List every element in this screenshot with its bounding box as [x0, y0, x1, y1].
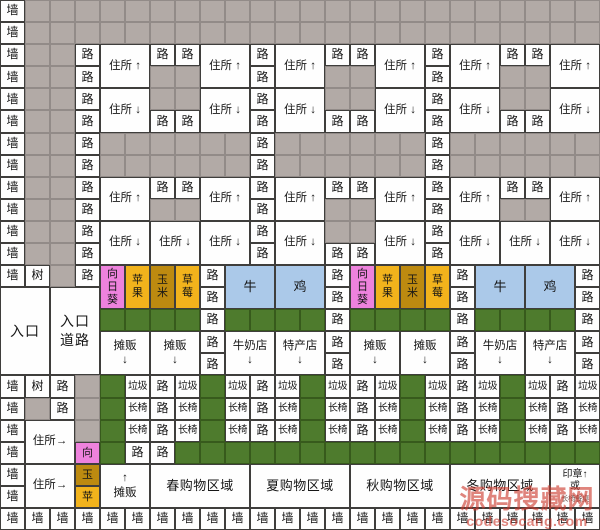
cell-wall: 墙 [500, 508, 525, 530]
cell-open-ground [175, 66, 200, 88]
cell-wall: 墙 [0, 464, 25, 486]
cell-open-ground [50, 177, 75, 199]
cell-bench: 长椅 [375, 398, 400, 420]
cell-open-ground [375, 133, 400, 155]
cell-road: 路 [150, 375, 175, 397]
cell-street-stall-up: ↑摊贩 [100, 464, 150, 508]
cell-road: 路 [575, 265, 600, 287]
cell-wall: 墙 [225, 508, 250, 530]
cell-road: 路 [450, 265, 475, 287]
cell-open-ground [275, 22, 300, 44]
cell-wall: 墙 [0, 398, 25, 420]
cell-trash: 垃圾 [475, 375, 500, 397]
cell-milk-shop: 牛奶店↓ [475, 331, 525, 375]
cell-open-ground [75, 0, 100, 22]
cell-open-ground [425, 22, 450, 44]
cell-open-ground [50, 44, 75, 66]
cell-wall: 墙 [475, 508, 500, 530]
cell-open-ground [475, 155, 500, 177]
cell-road: 路 [125, 442, 150, 464]
cell-open-ground [400, 22, 425, 44]
cell-house-down: 住所 ↓ [275, 88, 325, 132]
cell-wall: 墙 [0, 442, 25, 464]
cell-open-ground [350, 66, 375, 88]
cell-road: 路 [50, 375, 75, 397]
cell-open-ground [300, 0, 325, 22]
cell-open-ground [450, 0, 475, 22]
cell-wall: 墙 [525, 508, 550, 530]
cell-road: 路 [200, 265, 225, 287]
cell-wall: 墙 [350, 508, 375, 530]
cell-lawn [400, 420, 425, 442]
cell-corn: 玉米 [400, 265, 425, 309]
cell-open-ground [325, 155, 350, 177]
cell-open-ground [50, 133, 75, 155]
cell-lawn [500, 420, 525, 442]
cell-entrance: 入口 [0, 287, 50, 375]
cell-lawn [275, 442, 300, 464]
cell-road: 路 [425, 44, 450, 66]
cell-open-ground [25, 398, 50, 420]
cell-bench: 长椅 [275, 398, 300, 420]
cell-open-ground [425, 0, 450, 22]
cell-open-ground [325, 221, 350, 243]
cell-road: 路 [250, 243, 275, 265]
cell-open-ground [325, 133, 350, 155]
cell-open-ground [200, 155, 225, 177]
cell-wall: 墙 [0, 486, 25, 508]
cell-open-ground [150, 133, 175, 155]
cell-wall: 墙 [175, 508, 200, 530]
cell-open-ground [75, 375, 100, 397]
cell-open-ground [250, 0, 275, 22]
cell-road: 路 [575, 309, 600, 331]
cell-open-ground [525, 22, 550, 44]
cell-road: 路 [550, 398, 575, 420]
cell-wall: 墙 [0, 243, 25, 265]
cell-lawn [475, 442, 500, 464]
cell-open-ground [375, 22, 400, 44]
cell-open-ground [350, 133, 375, 155]
cell-road: 路 [325, 353, 350, 375]
cell-house-up: 住所 ↑ [450, 177, 500, 221]
cell-road: 路 [450, 331, 475, 353]
cell-house-down: 住所 ↓ [375, 88, 425, 132]
cell-road: 路 [575, 331, 600, 353]
cell-zone-spring: 春购物区域 [150, 464, 250, 508]
cell-street-stall-down: 摊贩↓ [400, 331, 450, 375]
cell-road: 路 [250, 420, 275, 442]
cell-trash: 垃圾 [425, 375, 450, 397]
cell-road: 路 [50, 398, 75, 420]
cell-wall: 墙 [0, 221, 25, 243]
cell-lawn [300, 442, 325, 464]
cell-road: 路 [525, 44, 550, 66]
cell-wall: 墙 [0, 133, 25, 155]
cell-lawn [400, 442, 425, 464]
cell-house-down: 住所 ↓ [275, 221, 325, 265]
cell-open-ground [175, 0, 200, 22]
cell-marker-corn: 玉 [75, 464, 100, 486]
cell-open-ground [50, 88, 75, 110]
cell-lawn [275, 309, 300, 331]
cell-house-down: 住所 ↓ [200, 221, 250, 265]
cell-road: 路 [450, 398, 475, 420]
cell-street-stall-down: 摊贩↓ [100, 331, 150, 375]
cell-open-ground [325, 22, 350, 44]
cell-strawberry: 草莓 [425, 265, 450, 309]
cell-open-ground [100, 0, 125, 22]
cell-open-ground [200, 0, 225, 22]
cell-road: 路 [150, 442, 175, 464]
cell-zone-autumn: 秋购物区域 [350, 464, 450, 508]
cell-open-ground [500, 133, 525, 155]
cell-house-up: 住所 ↑ [200, 177, 250, 221]
cell-open-ground [575, 155, 600, 177]
cell-open-ground [50, 265, 75, 287]
cell-lawn [300, 398, 325, 420]
cell-lawn [500, 309, 525, 331]
cell-trash: 垃圾 [575, 375, 600, 397]
cell-house-up: 住所 ↑ [100, 177, 150, 221]
cell-bench: 长椅 [375, 420, 400, 442]
cell-lawn [450, 442, 475, 464]
cell-lawn [500, 398, 525, 420]
cell-open-ground [50, 0, 75, 22]
cell-open-ground [175, 133, 200, 155]
cell-road: 路 [150, 177, 175, 199]
cell-zone-summer: 夏购物区域 [250, 464, 350, 508]
cell-apple: 苹果 [375, 265, 400, 309]
cell-wall: 墙 [0, 420, 25, 442]
cell-road: 路 [75, 88, 100, 110]
cell-open-ground [475, 0, 500, 22]
cell-wall: 墙 [0, 110, 25, 132]
cell-road: 路 [150, 44, 175, 66]
cell-road: 路 [525, 177, 550, 199]
cell-lawn [100, 375, 125, 397]
cell-lawn [325, 442, 350, 464]
cell-cow-pen: 牛 [475, 265, 525, 309]
cell-open-ground [325, 0, 350, 22]
cell-open-ground [150, 199, 175, 221]
cell-road: 路 [150, 398, 175, 420]
cell-open-ground [175, 199, 200, 221]
cell-open-ground [500, 0, 525, 22]
cell-lawn [175, 442, 200, 464]
cell-road: 路 [425, 88, 450, 110]
cell-house-down: 住所 ↓ [550, 221, 600, 265]
cell-open-ground [550, 22, 575, 44]
cell-road: 路 [425, 133, 450, 155]
cell-road: 路 [250, 375, 275, 397]
cell-road: 路 [325, 309, 350, 331]
cell-open-ground [525, 66, 550, 88]
cell-road: 路 [350, 375, 375, 397]
cell-road: 路 [575, 287, 600, 309]
cell-wall: 墙 [100, 508, 125, 530]
cell-lawn [375, 309, 400, 331]
cell-lawn [300, 375, 325, 397]
cell-cow-pen: 牛 [225, 265, 275, 309]
cell-lawn [350, 442, 375, 464]
cell-wall: 墙 [550, 508, 575, 530]
cell-lawn [100, 398, 125, 420]
cell-open-ground [550, 155, 575, 177]
cell-wall: 墙 [300, 508, 325, 530]
cell-house-up: 住所 ↑ [275, 177, 325, 221]
cell-road: 路 [575, 353, 600, 375]
cell-open-ground [100, 155, 125, 177]
cell-zone-winter: 冬购物区域 [450, 464, 550, 508]
cell-road: 路 [325, 177, 350, 199]
cell-open-ground [50, 66, 75, 88]
cell-wall: 墙 [25, 508, 50, 530]
cell-open-ground [500, 22, 525, 44]
cell-road: 路 [325, 110, 350, 132]
cell-lawn [225, 442, 250, 464]
cell-open-ground [350, 221, 375, 243]
cell-road: 路 [75, 221, 100, 243]
cell-open-ground [525, 155, 550, 177]
cell-specialty-shop: 特产店↓ [275, 331, 325, 375]
cell-open-ground [575, 22, 600, 44]
cell-road: 路 [500, 44, 525, 66]
cell-open-ground [325, 66, 350, 88]
cell-open-ground [325, 199, 350, 221]
cell-open-ground [75, 398, 100, 420]
cell-road: 路 [200, 331, 225, 353]
cell-house-up: 住所 ↑ [375, 177, 425, 221]
cell-sunflower: 向日葵 [100, 265, 125, 309]
cell-house-up: 住所 ↑ [550, 177, 600, 221]
cell-road: 路 [250, 66, 275, 88]
cell-house-down: 住所 ↓ [450, 221, 500, 265]
cell-sunflower: 向日葵 [350, 265, 375, 309]
cell-bench: 长椅 [225, 398, 250, 420]
cell-wall: 墙 [0, 199, 25, 221]
cell-wall: 墙 [0, 88, 25, 110]
cell-road: 路 [150, 420, 175, 442]
cell-open-ground [475, 133, 500, 155]
cell-wall: 墙 [275, 508, 300, 530]
cell-wall: 墙 [0, 66, 25, 88]
cell-open-ground [575, 133, 600, 155]
cell-open-ground [150, 22, 175, 44]
cell-wall: 墙 [0, 375, 25, 397]
cell-road: 路 [175, 44, 200, 66]
cell-road: 路 [425, 177, 450, 199]
cell-wall: 墙 [375, 508, 400, 530]
cell-open-ground [500, 155, 525, 177]
cell-road: 路 [250, 44, 275, 66]
cell-open-ground [450, 22, 475, 44]
cell-house-right: 住所→ [25, 464, 75, 508]
cell-open-ground [175, 155, 200, 177]
cell-open-ground [375, 155, 400, 177]
cell-street-stall-down: 摊贩↓ [150, 331, 200, 375]
cell-house-down: 住所 ↓ [200, 88, 250, 132]
cell-road: 路 [250, 133, 275, 155]
cell-wall: 墙 [450, 508, 475, 530]
cell-wall: 墙 [0, 155, 25, 177]
cell-lawn [375, 442, 400, 464]
cell-lawn [100, 309, 125, 331]
cell-bench: 长椅 [475, 420, 500, 442]
cell-road: 路 [350, 420, 375, 442]
cell-bench: 长椅 [125, 398, 150, 420]
cell-road: 路 [450, 309, 475, 331]
cell-road: 路 [425, 110, 450, 132]
cell-open-ground [550, 0, 575, 22]
cell-bench: 长椅 [325, 420, 350, 442]
cell-open-ground [400, 155, 425, 177]
cell-lawn [175, 309, 200, 331]
cell-wall: 墙 [0, 177, 25, 199]
cell-lawn [150, 309, 175, 331]
cell-open-ground [275, 0, 300, 22]
cell-wall: 墙 [400, 508, 425, 530]
cell-road: 路 [325, 287, 350, 309]
cell-wall: 墙 [75, 508, 100, 530]
cell-wall: 墙 [575, 508, 600, 530]
cell-open-ground [500, 88, 525, 110]
cell-marker-sunflower: 向 [75, 442, 100, 464]
cell-open-ground [450, 155, 475, 177]
cell-lawn [250, 309, 275, 331]
cell-open-ground [25, 88, 50, 110]
cell-tree: 树 [25, 375, 50, 397]
cell-road: 路 [75, 133, 100, 155]
layout-grid: 墙墙墙路住所 ↑路路住所 ↑路住所 ↑路路住所 ↑路住所 ↑路路住所 ↑墙路路路… [0, 0, 600, 530]
cell-lawn [300, 420, 325, 442]
cell-road: 路 [75, 110, 100, 132]
cell-house-down: 住所 ↓ [100, 221, 150, 265]
cell-road: 路 [425, 199, 450, 221]
cell-lawn [200, 398, 225, 420]
cell-street-stall-down: 摊贩↓ [350, 331, 400, 375]
cell-open-ground [275, 133, 300, 155]
cell-lawn [525, 442, 550, 464]
cell-open-ground [125, 0, 150, 22]
cell-wall: 墙 [0, 44, 25, 66]
cell-trash: 垃圾 [225, 375, 250, 397]
cell-road: 路 [350, 177, 375, 199]
cell-open-ground [25, 177, 50, 199]
cell-road: 路 [75, 155, 100, 177]
cell-road: 路 [250, 155, 275, 177]
cell-lawn [100, 442, 125, 464]
cell-chicken-pen: 鸡 [275, 265, 325, 309]
cell-wall: 墙 [0, 508, 25, 530]
cell-road: 路 [250, 398, 275, 420]
cell-open-ground [475, 22, 500, 44]
cell-road: 路 [325, 44, 350, 66]
cell-wall: 墙 [0, 22, 25, 44]
cell-open-ground [200, 133, 225, 155]
cell-road: 路 [325, 243, 350, 265]
cell-corn: 玉米 [150, 265, 175, 309]
cell-open-ground [550, 133, 575, 155]
cell-open-ground [25, 133, 50, 155]
cell-open-ground [100, 133, 125, 155]
cell-trash: 垃圾 [275, 375, 300, 397]
cell-lawn [200, 442, 225, 464]
cell-open-ground [500, 66, 525, 88]
cell-house-up: 住所 ↑ [375, 44, 425, 88]
cell-open-ground [25, 199, 50, 221]
cell-lawn [400, 309, 425, 331]
cell-road: 路 [450, 375, 475, 397]
cell-house-up: 住所 ↑ [550, 44, 600, 88]
cell-open-ground [225, 133, 250, 155]
cell-lawn [350, 309, 375, 331]
cell-road: 路 [250, 221, 275, 243]
cell-road: 路 [325, 265, 350, 287]
cell-open-ground [300, 133, 325, 155]
cell-road: 路 [200, 353, 225, 375]
cell-lawn [400, 398, 425, 420]
cell-trash: 垃圾 [175, 375, 200, 397]
cell-stamp-or-bench: 印章↑或长椅餐桌 [550, 464, 600, 508]
cell-open-ground [225, 155, 250, 177]
cell-specialty-shop: 特产店↓ [525, 331, 575, 375]
cell-open-ground [125, 22, 150, 44]
cell-wall: 墙 [150, 508, 175, 530]
cell-open-ground [350, 0, 375, 22]
cell-open-ground [350, 88, 375, 110]
cell-lawn [225, 309, 250, 331]
cell-open-ground [150, 66, 175, 88]
cell-open-ground [525, 199, 550, 221]
cell-apple: 苹果 [125, 265, 150, 309]
cell-open-ground [25, 44, 50, 66]
cell-bench: 长椅 [325, 398, 350, 420]
cell-open-ground [225, 0, 250, 22]
cell-lawn [125, 309, 150, 331]
cell-open-ground [25, 221, 50, 243]
cell-open-ground [25, 243, 50, 265]
cell-road: 路 [425, 155, 450, 177]
cell-road: 路 [200, 287, 225, 309]
cell-open-ground [50, 155, 75, 177]
cell-road: 路 [425, 221, 450, 243]
cell-bench: 长椅 [525, 420, 550, 442]
cell-open-ground [50, 110, 75, 132]
cell-wall: 墙 [0, 265, 25, 287]
cell-wall: 墙 [425, 508, 450, 530]
cell-house-up: 住所 ↑ [450, 44, 500, 88]
cell-open-ground [75, 420, 100, 442]
cell-open-ground [25, 155, 50, 177]
cell-road: 路 [75, 44, 100, 66]
cell-open-ground [350, 155, 375, 177]
cell-lawn [475, 309, 500, 331]
cell-open-ground [300, 22, 325, 44]
cell-bench: 长椅 [575, 420, 600, 442]
cell-lawn [550, 309, 575, 331]
cell-open-ground [75, 22, 100, 44]
cell-open-ground [125, 133, 150, 155]
cell-marker-apple: 苹 [75, 486, 100, 508]
cell-lawn [575, 442, 600, 464]
cell-open-ground [525, 133, 550, 155]
cell-road: 路 [75, 66, 100, 88]
cell-open-ground [25, 22, 50, 44]
cell-house-right: 住所→ [25, 420, 75, 464]
cell-house-up: 住所 ↑ [100, 44, 150, 88]
cell-road: 路 [75, 199, 100, 221]
